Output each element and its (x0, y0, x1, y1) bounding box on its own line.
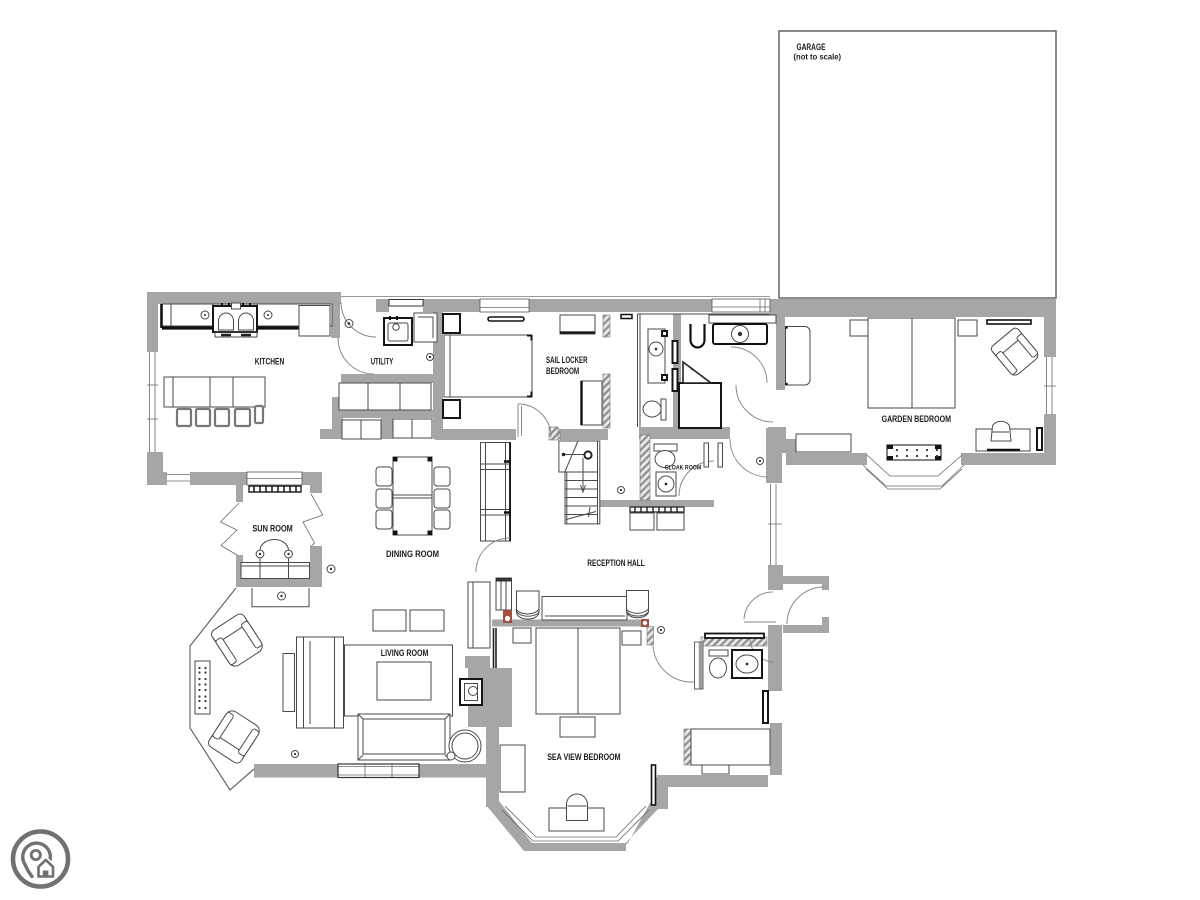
svg-text:KITCHEN: KITCHEN (255, 357, 285, 367)
svg-text:SAIL LOCKER: SAIL LOCKER (546, 355, 588, 365)
svg-text:SUN ROOM: SUN ROOM (252, 524, 292, 534)
svg-text:CLOAK ROOM: CLOAK ROOM (665, 465, 702, 472)
svg-text:BEDROOM: BEDROOM (546, 366, 579, 376)
svg-text:GARDEN BEDROOM: GARDEN BEDROOM (882, 414, 951, 424)
svg-text:RECEPTION HALL: RECEPTION HALL (587, 558, 645, 568)
svg-text:SEA VIEW BEDROOM: SEA VIEW BEDROOM (547, 752, 620, 762)
svg-text:(not to scale): (not to scale) (794, 51, 842, 61)
svg-text:UTILITY: UTILITY (371, 357, 394, 367)
svg-text:DINING ROOM: DINING ROOM (386, 549, 439, 559)
svg-text:LIVING ROOM: LIVING ROOM (381, 648, 429, 658)
